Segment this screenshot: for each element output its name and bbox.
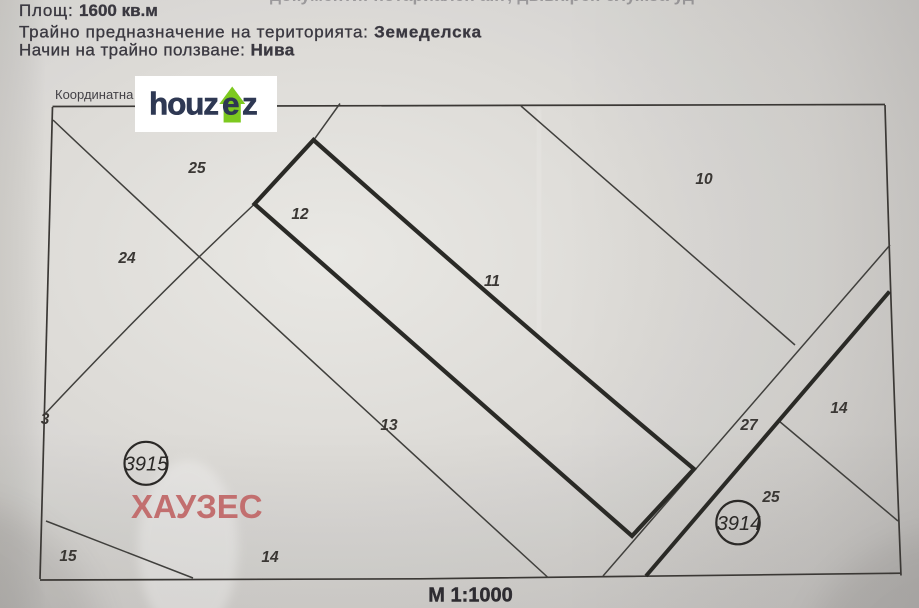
svg-text:z: z: [242, 86, 258, 122]
svg-text:Начин на трайно ползване: Нива: Начин на трайно ползване: Нива: [19, 41, 295, 60]
svg-text:10: 10: [695, 171, 713, 188]
svg-text:3914: 3914: [717, 513, 762, 535]
svg-text:24: 24: [117, 250, 136, 267]
svg-text:25: 25: [761, 489, 780, 506]
svg-text:Площ: 1600 кв.м: Площ: 1600 кв.м: [19, 1, 158, 20]
svg-text:15: 15: [59, 548, 77, 565]
svg-text:11: 11: [484, 273, 500, 290]
svg-text:3: 3: [41, 411, 50, 428]
svg-text:13: 13: [380, 417, 398, 434]
svg-text:e: e: [222, 86, 240, 122]
svg-text:12: 12: [291, 206, 309, 223]
svg-text:14: 14: [261, 549, 279, 566]
svg-text:документи: нотариален акт; дв.: документи: нотариален акт; дв.вх.рег. сл…: [270, 0, 694, 5]
svg-text:ХАУЗЕС: ХАУЗЕС: [131, 488, 263, 525]
svg-text:25: 25: [187, 160, 206, 177]
svg-text:houz: houz: [149, 86, 219, 122]
svg-text:3915: 3915: [124, 454, 169, 476]
svg-text:Трайно предназначение на терит: Трайно предназначение на територията: Зе…: [19, 23, 482, 42]
svg-text:М 1:1000: М 1:1000: [428, 585, 513, 607]
svg-text:27: 27: [739, 417, 759, 434]
svg-text:14: 14: [830, 400, 848, 417]
